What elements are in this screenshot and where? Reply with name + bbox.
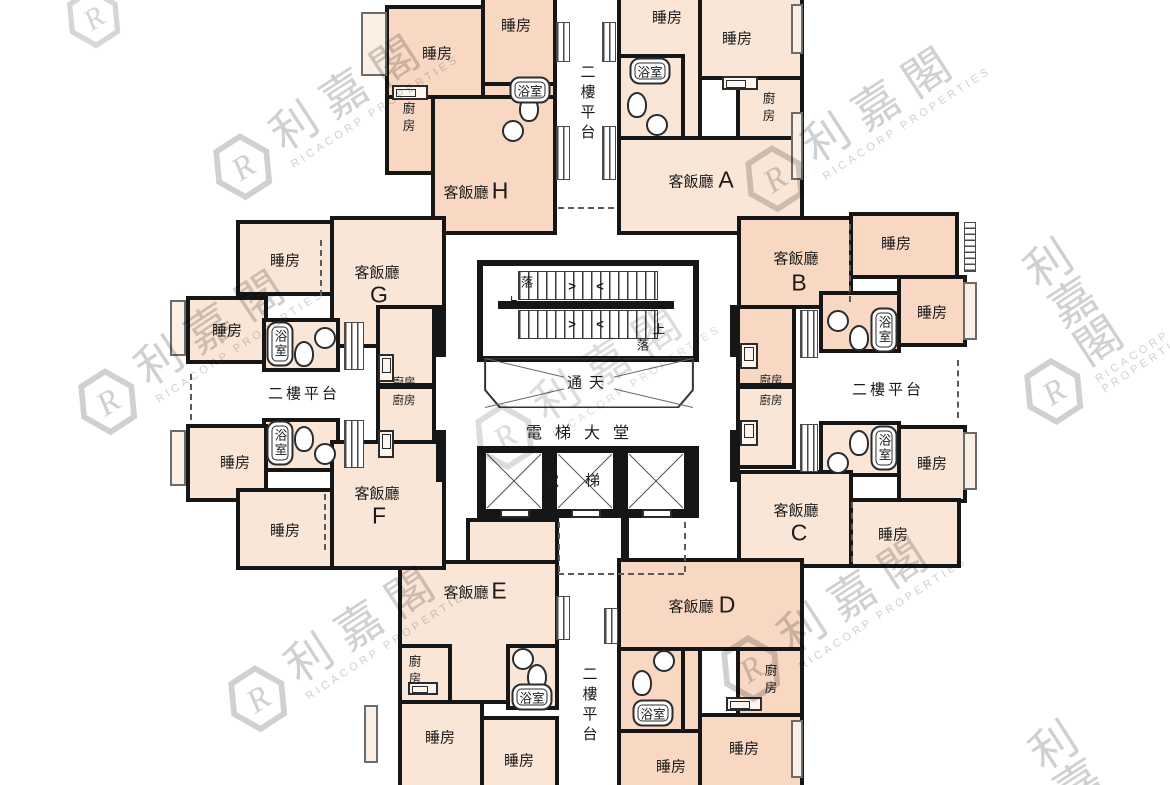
stair-divider-wall — [498, 301, 674, 309]
louvre — [800, 310, 818, 358]
room-label: 廚房 — [759, 92, 778, 127]
wall — [621, 518, 629, 562]
platform-boundary-dashed — [957, 360, 959, 418]
toilet-icon — [294, 426, 314, 452]
room-label: 睡房 — [656, 756, 686, 777]
platform-boundary-dashed — [558, 573, 684, 575]
unit-letter: H — [492, 178, 509, 205]
room-label: 睡房 — [652, 7, 682, 28]
room-label: 睡房 — [878, 524, 908, 545]
kitchen-counter-icon — [722, 76, 758, 90]
louvre — [344, 420, 364, 468]
room-label: 廚房 — [393, 392, 416, 408]
unit-e-living-room — [398, 560, 559, 648]
platform-label: 二樓平台 — [852, 379, 924, 400]
room-label: 睡房 — [422, 43, 452, 64]
bathtub-icon: 浴室 — [632, 700, 673, 727]
platform-boundary-dashed — [558, 207, 614, 209]
stair-arrow-icon: < — [596, 317, 604, 332]
room-label: 客飯廳 — [773, 248, 818, 269]
svg-text:R: R — [89, 381, 127, 424]
unit-e-entry — [466, 518, 559, 566]
unit-e-hall — [448, 644, 510, 704]
stair-arrow-icon: > — [568, 279, 576, 294]
bathtub-icon: 浴室 — [509, 77, 550, 104]
unit-letter: G — [370, 282, 388, 309]
bathtub-icon: 浴室 — [871, 308, 898, 353]
toilet-icon — [632, 670, 652, 696]
louvre — [800, 424, 818, 472]
lift-door-recess — [500, 509, 530, 518]
svg-text:R: R — [1035, 371, 1073, 414]
partition-dashed — [851, 502, 853, 562]
room-label: 睡房 — [881, 233, 911, 254]
watermark: R 利嘉閣RICACORP PROPERTIES — [960, 682, 1170, 785]
toilet-icon — [294, 341, 314, 367]
lift-lobby-label: 電梯大堂 — [526, 419, 642, 443]
stair-flight — [518, 271, 658, 300]
unit-a-bay-window — [791, 112, 803, 180]
unit-h-bay-window — [361, 12, 387, 76]
room-label: 廚房 — [399, 102, 418, 137]
room-label: 睡房 — [504, 750, 534, 771]
stair-arrow-icon: < — [596, 279, 604, 294]
room-label: 客飯廳 — [354, 262, 399, 283]
unit-d-bay-window — [791, 720, 803, 778]
room-label: 廚房 — [393, 374, 416, 390]
platform-boundary-dashed — [190, 374, 192, 420]
toilet-icon — [849, 430, 869, 456]
wall — [436, 305, 446, 357]
lift-door-recess — [642, 509, 672, 518]
kitchen-counter-icon — [740, 343, 758, 369]
room-label: 睡房 — [425, 727, 455, 748]
louvre — [602, 22, 616, 62]
stair-arrow-icon: > — [568, 317, 576, 332]
room-label: 客飯廳 — [443, 582, 488, 603]
platform-label: 二樓平台 — [579, 666, 600, 746]
watermark: R 利嘉閣RICACORP PROPERTIES — [955, 200, 1170, 435]
room-label: 廚房 — [761, 664, 780, 699]
unit-letter: D — [719, 592, 736, 619]
kitchen-counter-icon — [726, 697, 762, 711]
toilet-icon — [849, 325, 869, 351]
lift-label: 電梯 — [544, 470, 626, 491]
room-label: 廚房 — [760, 372, 783, 388]
bathtub-icon: 浴室 — [267, 322, 294, 367]
unit-letter: C — [791, 520, 808, 547]
bathtub-icon: 浴室 — [267, 421, 294, 466]
unit-letter: E — [491, 578, 506, 605]
louvre — [344, 322, 364, 370]
stair-direction: 落 — [637, 335, 650, 354]
stair-direction: 落 — [521, 272, 534, 291]
louvre — [556, 22, 570, 62]
unit-a-hall — [681, 54, 702, 142]
window — [964, 222, 976, 272]
louvre — [602, 126, 616, 180]
unit-f-bay-window — [170, 430, 186, 486]
room-label: 客飯廳 — [668, 171, 713, 192]
unit-h-living-room — [431, 95, 557, 235]
room-label: 客飯廳 — [354, 483, 399, 504]
unit-c-bay-window — [963, 432, 977, 490]
louvre — [556, 596, 570, 640]
sink-icon — [646, 114, 668, 136]
partition-dashed — [849, 224, 851, 302]
lift-door-recess — [571, 509, 601, 518]
bathtub-icon: 浴室 — [511, 684, 552, 711]
unit-letter: F — [372, 503, 386, 530]
sink-icon — [314, 443, 336, 465]
lift-shaft — [486, 453, 542, 509]
unit-b-bay-window — [963, 282, 977, 340]
room-label: 睡房 — [501, 15, 531, 36]
room-label: 廚房 — [760, 392, 783, 408]
sink-icon — [314, 327, 336, 349]
kitchen-counter-icon — [740, 420, 758, 446]
room-label: 睡房 — [729, 738, 759, 759]
lift-shaft — [628, 453, 684, 509]
room-label: 客飯廳 — [443, 182, 488, 203]
sink-icon — [502, 120, 524, 142]
platform-label: 二樓平台 — [268, 383, 340, 404]
room-label: 客飯廳 — [668, 596, 713, 617]
louvre — [604, 608, 618, 644]
svg-text:R: R — [224, 146, 262, 189]
room-label: 睡房 — [917, 302, 947, 323]
void-label: 通天 — [564, 372, 614, 393]
room-label: 客飯廳 — [773, 500, 818, 521]
room-label: 睡房 — [212, 320, 242, 341]
unit-g-bay-window — [170, 300, 186, 356]
partition-dashed — [324, 494, 326, 550]
stair-direction: 上 — [653, 319, 666, 338]
room-label: 睡房 — [270, 520, 300, 541]
kitchen-counter-icon — [378, 430, 394, 458]
unit-e-bay-window — [364, 705, 378, 763]
partition-dashed — [320, 240, 322, 296]
bathtub-icon: 浴室 — [871, 426, 898, 471]
sink-icon — [827, 310, 849, 332]
room-label: 睡房 — [270, 250, 300, 271]
bathtub-icon: 浴室 — [629, 58, 670, 85]
stair-direction: 上 — [506, 292, 519, 311]
unit-a-bay-window — [791, 4, 803, 54]
svg-text:R: R — [76, 0, 111, 38]
unit-letter: A — [718, 167, 733, 194]
wall — [730, 430, 740, 482]
room-label: 睡房 — [917, 453, 947, 474]
unit-letter: B — [791, 270, 806, 297]
wall — [436, 430, 446, 482]
toilet-icon — [627, 92, 647, 118]
room-label: 廚房 — [405, 655, 424, 690]
unit-h-bedroom-2 — [481, 0, 557, 86]
sink-icon — [653, 650, 675, 672]
floor-plan: 睡房 睡房 浴室 廚房 客飯廳 H 二樓平台 睡房 睡房 浴室 廚房 客飯廳 A… — [0, 0, 1170, 785]
louvre — [556, 126, 570, 180]
svg-text:R: R — [239, 678, 277, 721]
kitchen-counter-icon — [392, 85, 428, 100]
room-label: 睡房 — [220, 452, 250, 473]
watermark-logo-icon: R — [54, 0, 137, 62]
sink-icon — [827, 452, 849, 474]
wall — [730, 305, 740, 357]
room-label: 睡房 — [722, 28, 752, 49]
platform-label: 二樓平台 — [577, 64, 598, 144]
platform-boundary-dashed — [684, 522, 686, 572]
platform-boundary-dashed — [558, 522, 560, 572]
